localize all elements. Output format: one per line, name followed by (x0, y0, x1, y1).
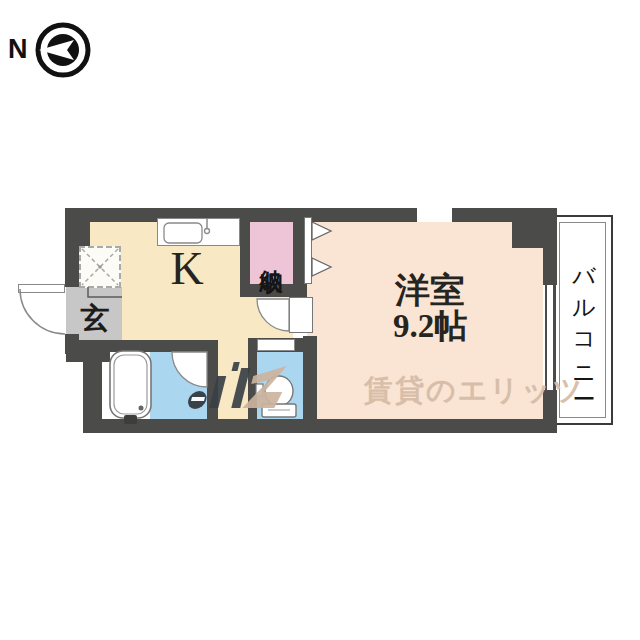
wall-closet-bottom (240, 284, 307, 297)
hallway-floor (218, 342, 248, 419)
wall-right-upper (543, 208, 557, 285)
wall-bottom (83, 419, 557, 433)
entrance-label: 玄 (76, 302, 114, 336)
entry-door-leaf (18, 284, 65, 293)
entry-door-arc (20, 289, 65, 334)
bathtub-pad (102, 352, 150, 419)
closet-door-panel (304, 217, 312, 284)
wall-bath-right (207, 352, 218, 419)
floor-plan: N K 玄 収納 洋室 9.2帖 バルコニー 賃貸のエリッツ (0, 0, 640, 640)
toilet-door (257, 339, 295, 351)
stove-space (79, 246, 121, 288)
kitchen-label: K (156, 240, 218, 296)
wall-closet-left (240, 218, 250, 284)
wall-toilet-left (248, 352, 257, 419)
room-door-leaf (289, 297, 313, 333)
wall-left-upper (65, 208, 79, 287)
north-label: N (8, 34, 28, 65)
toilet-floor (257, 352, 303, 419)
western-room-size: 9.2帖 (360, 308, 500, 344)
outside-notch (40, 362, 83, 447)
compass: N (8, 14, 100, 86)
closet-label: 収納 (257, 221, 287, 283)
wall-bath-top (79, 340, 218, 352)
watermark-text: 賃貸のエリッツ (364, 371, 584, 411)
